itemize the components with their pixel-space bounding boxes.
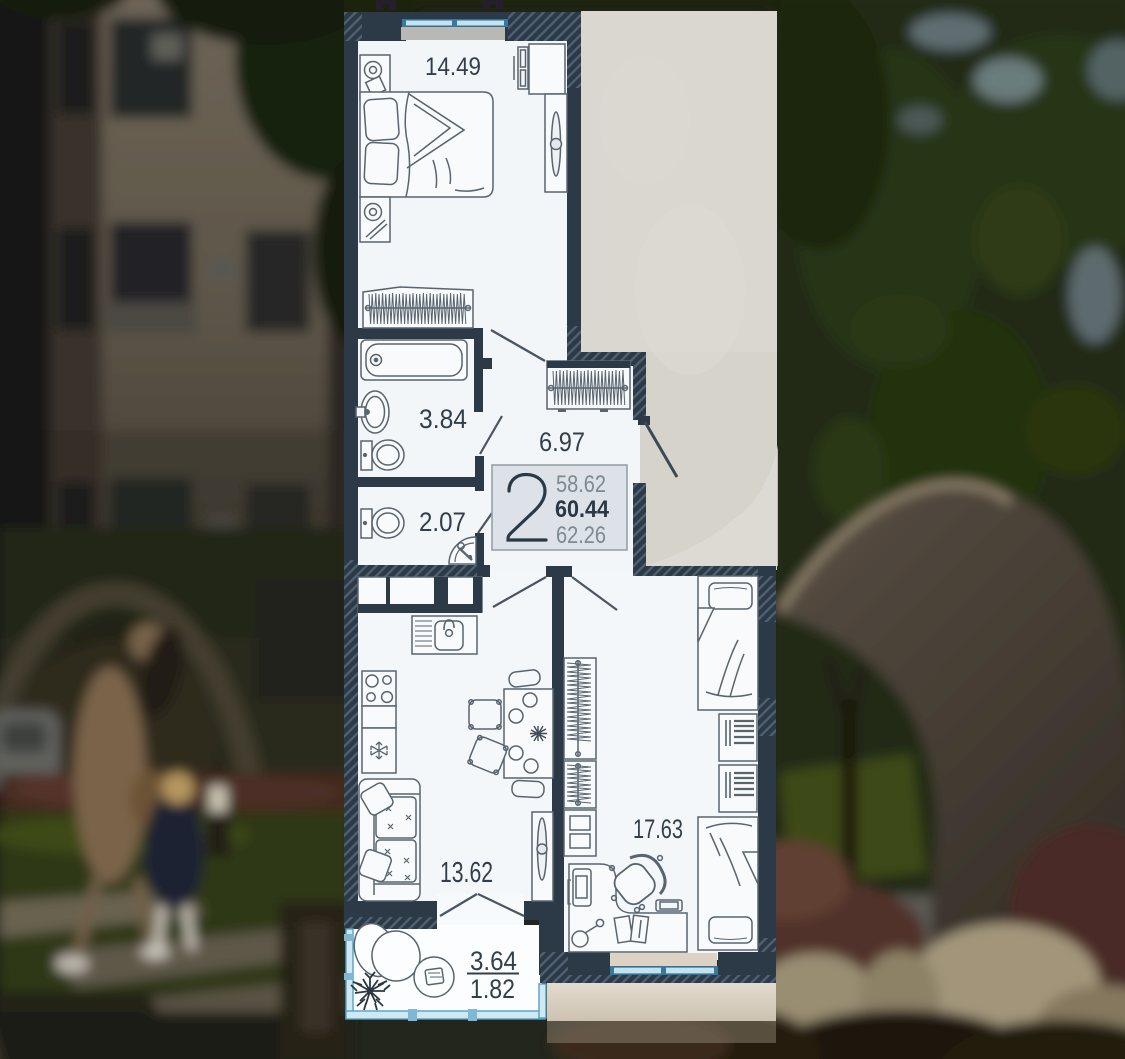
svg-text:1.82: 1.82 — [470, 974, 515, 1004]
svg-text:13.62: 13.62 — [440, 857, 493, 889]
svg-text:60.44: 60.44 — [555, 496, 610, 523]
svg-text:6.97: 6.97 — [539, 427, 585, 457]
svg-text:62.26: 62.26 — [556, 522, 606, 549]
svg-text:2.07: 2.07 — [419, 507, 466, 537]
svg-text:3.84: 3.84 — [419, 404, 467, 434]
svg-text:14.49: 14.49 — [425, 53, 481, 81]
svg-text:58.62: 58.62 — [556, 471, 606, 498]
svg-text:3.64: 3.64 — [470, 946, 517, 976]
svg-text:17.63: 17.63 — [633, 814, 683, 844]
